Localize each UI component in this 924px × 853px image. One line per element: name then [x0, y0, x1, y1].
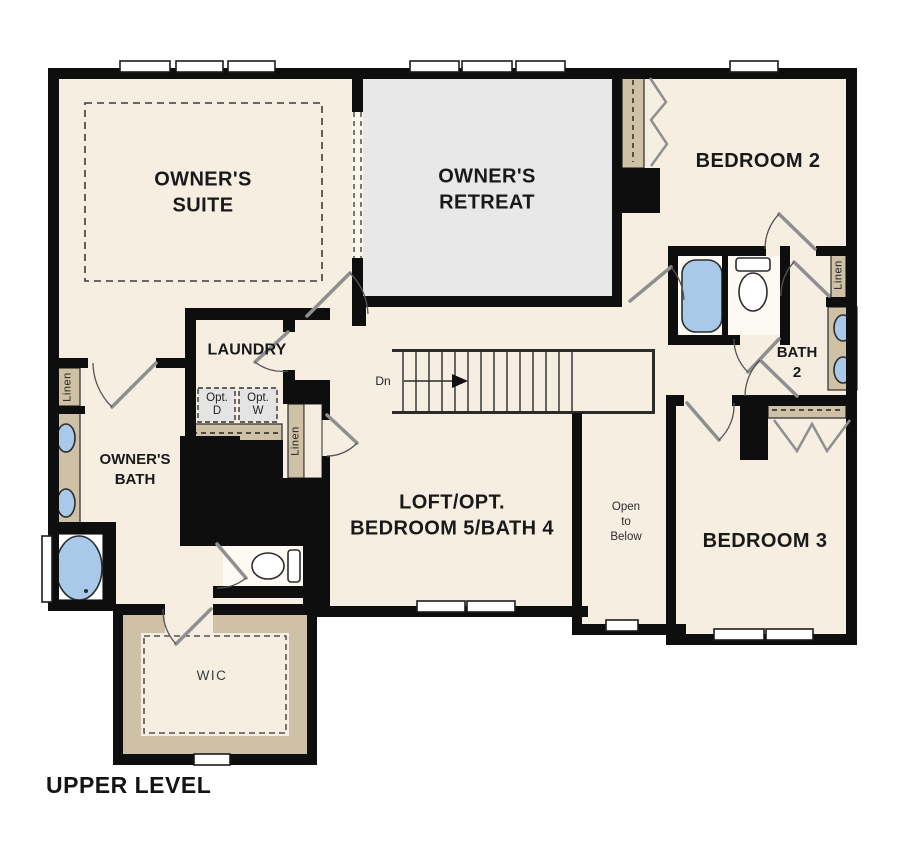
wic-label: WIC [197, 667, 228, 685]
linen-center-label: Linen [289, 426, 304, 455]
window [176, 61, 223, 72]
page-title: UPPER LEVEL [46, 770, 211, 800]
garden-tub [56, 536, 102, 600]
window [42, 536, 52, 602]
cased-opening-dashed [352, 112, 363, 258]
sink [57, 424, 75, 452]
window [714, 629, 764, 640]
toilet-bowl [252, 553, 284, 579]
optional-dryer-label: Opt. D [206, 392, 228, 418]
window [467, 601, 515, 612]
window [410, 61, 459, 72]
owners-bath-label: OWNER'S BATH [99, 450, 170, 490]
linen-right-label: Linen [832, 260, 847, 289]
toilet-tank [736, 258, 770, 271]
window [417, 601, 465, 612]
bath2-label: BATH 2 [777, 343, 818, 383]
window [120, 61, 170, 72]
window [228, 61, 275, 72]
linen-left-label: Linen [61, 372, 76, 401]
laundry-label: LAUNDRY [207, 339, 286, 360]
window [194, 754, 230, 765]
sink [57, 489, 75, 517]
bathtub [682, 260, 722, 332]
optional-washer-label: Opt. W [247, 392, 269, 418]
floor-plan-drawing [0, 0, 924, 853]
bedroom2-label: BEDROOM 2 [696, 148, 821, 174]
window [462, 61, 512, 72]
owner-suite-label: OWNER'S SUITE [154, 167, 252, 220]
loft-label: LOFT/OPT. BEDROOM 5/BATH 4 [350, 490, 554, 543]
stairs-dn-label: Dn [375, 374, 390, 390]
floor-plan-page: OWNER'S SUITE OWNER'S RETREAT BEDROOM 2 … [0, 0, 924, 853]
linen-center-interior [304, 404, 322, 478]
toilet-tank [288, 550, 300, 582]
owner-retreat-label: OWNER'S RETREAT [438, 164, 536, 217]
open-to-below-label: Open to Below [610, 500, 641, 546]
window [730, 61, 778, 72]
bedroom3-label: BEDROOM 3 [703, 528, 828, 554]
toilet-bowl [739, 273, 767, 311]
window [766, 629, 813, 640]
window [606, 620, 638, 631]
window [516, 61, 565, 72]
